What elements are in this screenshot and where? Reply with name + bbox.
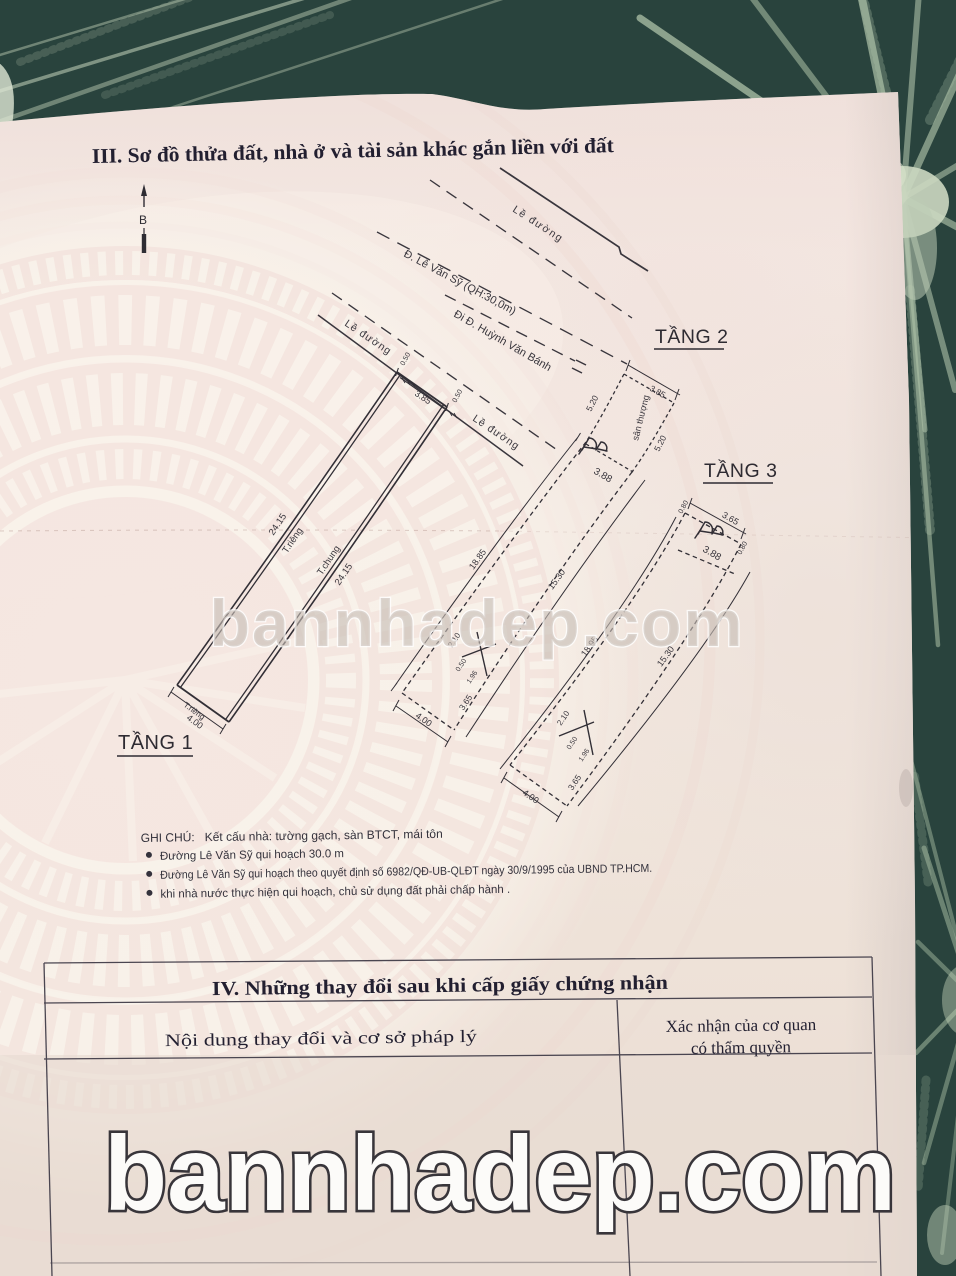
- svg-text:Đường Lê Văn Sỹ qui hoạch 30.0: Đường Lê Văn Sỹ qui hoạch 30.0 m: [160, 848, 344, 863]
- svg-text:TẦNG 1: TẦNG 1: [118, 731, 193, 754]
- svg-text:bannhadep.com: bannhadep.com: [104, 1115, 896, 1233]
- svg-text:Xác nhận của cơ quan: Xác nhận của cơ quan: [666, 1015, 817, 1036]
- svg-text:TẦNG 2: TẦNG 2: [655, 325, 728, 348]
- svg-text:B: B: [139, 213, 147, 227]
- svg-text:bannhadep.com: bannhadep.com: [210, 586, 745, 660]
- svg-text:TẦNG 3: TẦNG 3: [704, 459, 777, 482]
- svg-text:có thẩm quyền: có thẩm quyền: [691, 1037, 792, 1057]
